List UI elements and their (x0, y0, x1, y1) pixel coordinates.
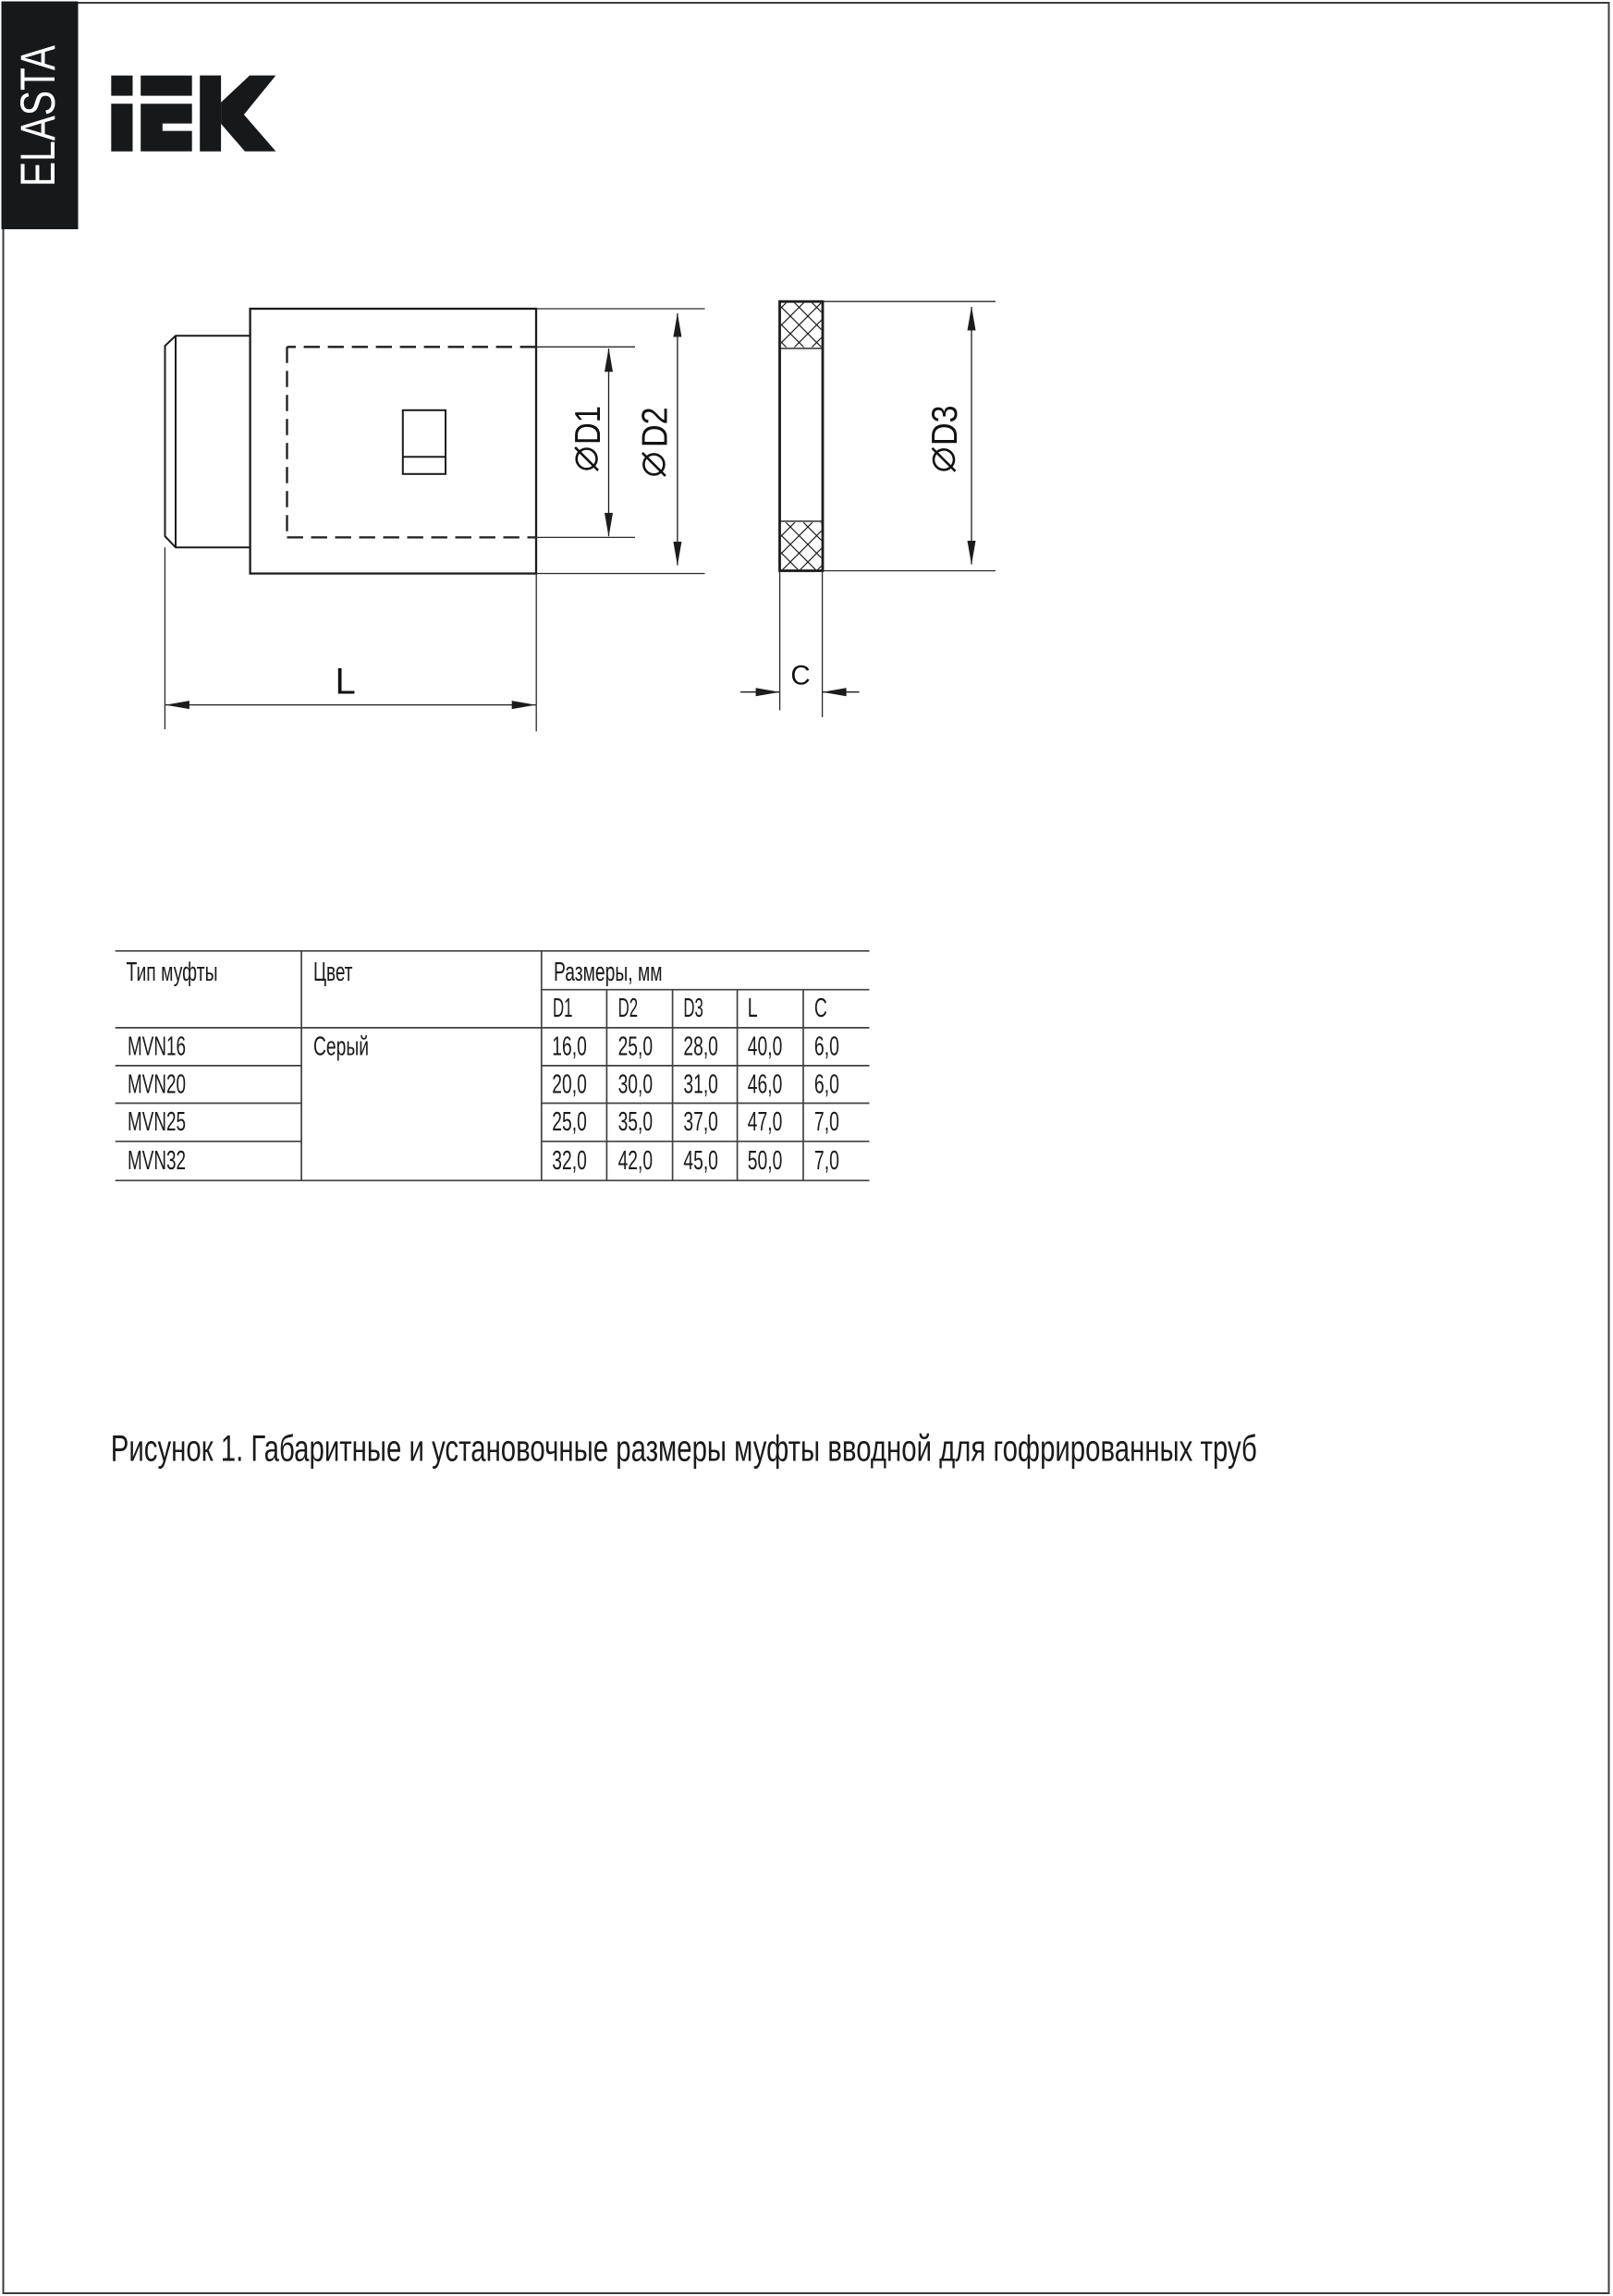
svg-text:Серый: Серый (313, 1032, 369, 1062)
svg-text:C: C (790, 661, 810, 691)
svg-text:MVN20: MVN20 (128, 1069, 186, 1099)
svg-text:37,0: 37,0 (683, 1107, 718, 1137)
svg-text:46,0: 46,0 (748, 1069, 783, 1099)
svg-text:7,0: 7,0 (814, 1107, 839, 1137)
svg-text:6,0: 6,0 (814, 1032, 839, 1062)
svg-text:40,0: 40,0 (748, 1032, 783, 1062)
svg-text:25,0: 25,0 (552, 1107, 587, 1137)
svg-text:Рисунок 1. Габаритные и устано: Рисунок 1. Габаритные и установочные раз… (111, 1429, 1257, 1470)
svg-text:6,0: 6,0 (814, 1069, 839, 1099)
svg-text:L: L (336, 662, 356, 702)
svg-text:7,0: 7,0 (814, 1146, 839, 1176)
svg-text:Цвет: Цвет (313, 958, 353, 987)
svg-text:D1: D1 (568, 406, 608, 445)
svg-text:20,0: 20,0 (552, 1069, 587, 1099)
svg-text:D2: D2 (636, 408, 676, 448)
svg-text:16,0: 16,0 (552, 1032, 587, 1062)
svg-text:L: L (748, 994, 758, 1023)
svg-text:D2: D2 (618, 994, 639, 1023)
svg-text:MVN25: MVN25 (128, 1107, 186, 1137)
svg-text:Размеры, мм: Размеры, мм (554, 958, 663, 987)
svg-text:25,0: 25,0 (618, 1032, 654, 1062)
svg-text:D3: D3 (925, 406, 965, 446)
svg-text:31,0: 31,0 (683, 1069, 718, 1099)
svg-text:50,0: 50,0 (748, 1146, 783, 1176)
svg-text:28,0: 28,0 (683, 1032, 718, 1062)
svg-text:D1: D1 (553, 994, 573, 1023)
svg-text:D3: D3 (683, 994, 703, 1023)
svg-text:47,0: 47,0 (748, 1107, 783, 1137)
svg-text:32,0: 32,0 (552, 1146, 587, 1176)
svg-text:45,0: 45,0 (683, 1146, 718, 1176)
svg-text:MVN32: MVN32 (128, 1146, 186, 1176)
svg-text:Тип муфты: Тип муфты (127, 958, 218, 987)
svg-text:ELASTA: ELASTA (11, 45, 66, 187)
svg-text:35,0: 35,0 (618, 1107, 654, 1137)
svg-text:C: C (814, 994, 827, 1023)
svg-text:42,0: 42,0 (618, 1146, 654, 1176)
svg-text:30,0: 30,0 (618, 1069, 654, 1099)
svg-text:MVN16: MVN16 (128, 1032, 186, 1062)
